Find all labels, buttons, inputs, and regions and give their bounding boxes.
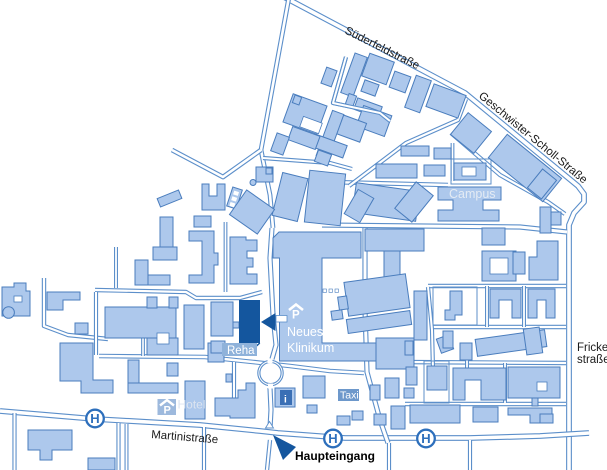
svg-text:P: P (292, 310, 300, 322)
svg-text:Hotel: Hotel (178, 398, 206, 412)
svg-text:H: H (90, 411, 99, 426)
svg-text:H: H (328, 431, 337, 446)
svg-text:Campus: Campus (449, 187, 496, 201)
svg-text:Haupteingang: Haupteingang (295, 449, 375, 463)
svg-text:P: P (164, 405, 171, 417)
svg-text:Fricke-straße: Fricke-straße (577, 342, 607, 366)
svg-text:Taxi: Taxi (340, 390, 359, 402)
svg-text:Reha: Reha (227, 345, 255, 357)
svg-text:H: H (421, 431, 430, 446)
svg-text:i: i (284, 395, 287, 406)
